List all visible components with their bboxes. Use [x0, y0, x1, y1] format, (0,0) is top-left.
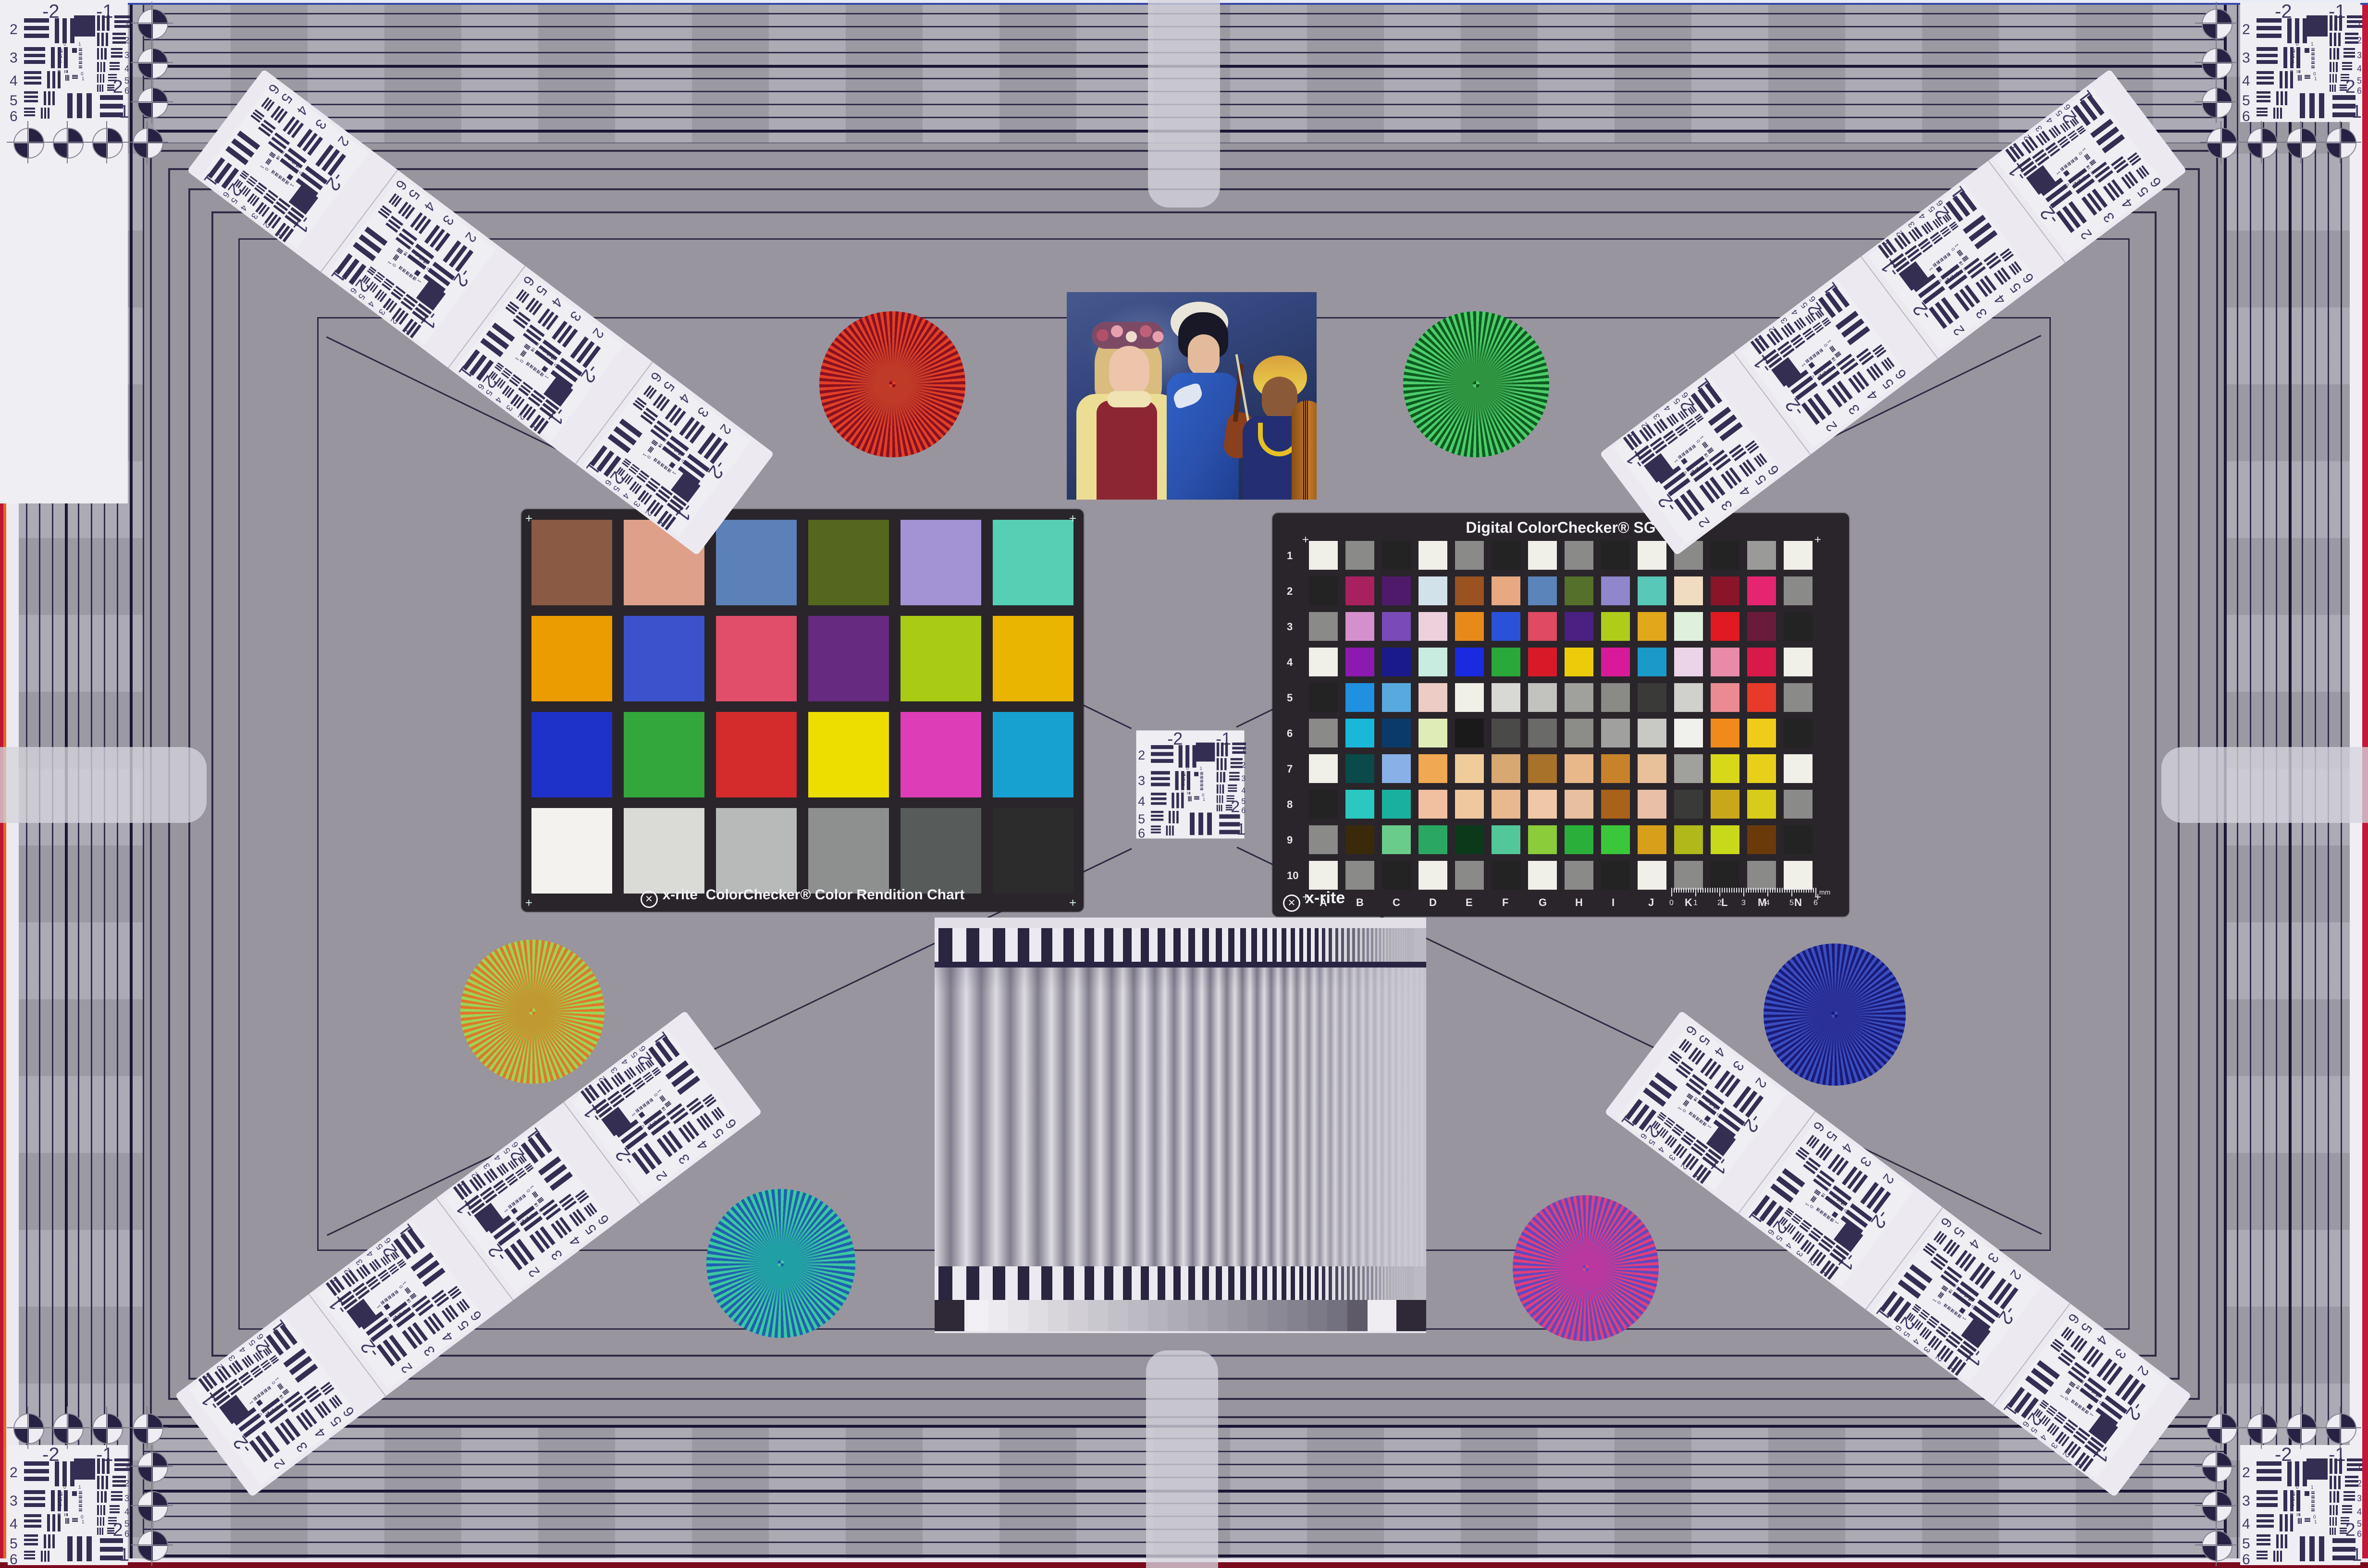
usaf-bottom-label: -2 [2339, 1521, 2356, 1539]
usaf-bar [2342, 1508, 2352, 1510]
usaf-bar [2290, 1514, 2293, 1531]
usaf-bottom-label: 1 [1745, 1208, 1766, 1227]
usaf-bar [1181, 774, 1185, 774]
usaf-bar [58, 72, 61, 72]
usaf-bar [2273, 108, 2275, 119]
usaf-group-label: 4 [124, 1507, 129, 1516]
usaf-center-label: 1 [377, 1304, 382, 1309]
usaf-bar [79, 1496, 82, 1497]
usaf-bar [2257, 1539, 2270, 1541]
usaf-bar [1200, 789, 1203, 790]
usaf-bar [24, 1534, 38, 1537]
usaf-bar [2257, 54, 2278, 58]
usaf-bar [2333, 62, 2335, 72]
usaf-bar [47, 71, 50, 88]
usaf-bar [64, 65, 65, 68]
usaf-group-label: 5 [2357, 1519, 2362, 1528]
usaf-bar [2311, 61, 2315, 61]
usaf-bar [110, 62, 120, 64]
usaf-bar [2273, 1551, 2275, 1562]
usaf-bar [66, 1513, 66, 1516]
usaf-bar [1200, 776, 1203, 776]
usaf-bar [65, 75, 66, 81]
usaf-bar [41, 108, 43, 119]
usaf-bar [1220, 772, 1222, 783]
usaf-bar [72, 78, 78, 79]
quadrant-cross-line [2216, 1524, 2217, 1566]
usaf-bar [99, 1528, 101, 1535]
usaf-bar [2297, 1497, 2297, 1502]
usaf-center-label: 0 [385, 1316, 391, 1321]
usaf-bar [24, 1461, 49, 1466]
usaf-bar [48, 1551, 49, 1562]
usaf-bottom-label: -2 [107, 1521, 123, 1539]
usaf-group-label: 3 [294, 1439, 310, 1454]
usaf-bar [2334, 33, 2336, 46]
usaf-bar [2295, 1461, 2299, 1486]
resolution-strip-top-left: -2-1234561234560101-21-2-123456123456010… [187, 69, 774, 556]
usaf-bar [2299, 65, 2300, 68]
usaf-bar [58, 1494, 62, 1494]
usaf-bar [67, 75, 68, 81]
usaf-bar [2343, 52, 2355, 54]
usaf-bar [1221, 805, 1222, 811]
usaf-bar [1217, 796, 1218, 803]
usaf-center-label: 0 [425, 266, 431, 271]
usaf-bar [2311, 1500, 2315, 1500]
usaf-bar [64, 70, 65, 73]
quadrant-circle [13, 128, 44, 159]
usaf-bar [2257, 114, 2268, 116]
usaf-bar [2319, 93, 2324, 118]
siemens-star-blue [1764, 943, 1906, 1086]
usaf-bar [2290, 70, 2293, 71]
usaf-bar [108, 74, 117, 75]
usaf-bar [256, 1399, 263, 1406]
usaf-bar [111, 48, 123, 50]
quadrant-cross-line [67, 121, 68, 163]
usaf-bar [24, 1497, 45, 1501]
usaf-bar [100, 74, 101, 83]
usaf-bar [110, 65, 120, 67]
usaf-center-label: 1 [2056, 170, 2061, 175]
usaf-bar [97, 33, 99, 46]
usaf-group-label: 6 [2242, 1553, 2250, 1567]
usaf-bar [2297, 65, 2297, 68]
usaf-bar [2257, 96, 2270, 98]
usaf-bar [2297, 1508, 2297, 1511]
quadrant-circle [2202, 1452, 2232, 1482]
usaf-bar [24, 18, 49, 23]
quadrant-circle [2247, 128, 2278, 159]
usaf-group-label: 4 [2120, 196, 2136, 210]
usaf-group-label: 3 [421, 1343, 438, 1358]
usaf-bar [2311, 1509, 2315, 1510]
usaf-bar [2285, 1534, 2287, 1548]
usaf-bar [66, 65, 66, 68]
siemens-star-gold-center-dot [529, 1008, 536, 1015]
usaf-bar [104, 48, 106, 60]
usaf-bar [1221, 796, 1223, 803]
usaf-bar [2311, 1505, 2315, 1506]
usaf-center-label: 0 [1843, 1208, 1848, 1213]
usaf-bar [58, 1494, 62, 1495]
usaf-bar [2257, 1554, 2268, 1556]
usaf-bar [2299, 54, 2300, 59]
usaf-bar [104, 1491, 106, 1503]
usaf-center-label: 1 [1804, 1201, 1809, 1206]
usaf-bar [1194, 796, 1199, 797]
usaf-center-label: 1 [82, 77, 85, 82]
usaf-center-label: 1 [1929, 266, 1934, 271]
usaf-bar [1172, 826, 1174, 836]
quadrant-cross-line [67, 1407, 68, 1449]
usaf-bar [24, 1557, 35, 1559]
usaf-group-label: 2 [654, 1168, 670, 1183]
usaf-center-label: 1 [2059, 1394, 2064, 1398]
usaf-bar [66, 1497, 66, 1502]
usaf-bar [48, 91, 50, 105]
usaf-bar [2257, 76, 2274, 79]
quadrant-cross-line [2261, 121, 2262, 163]
usaf-bar [1936, 266, 1942, 273]
usaf-bar [67, 1492, 67, 1497]
usaf-bar [2334, 1458, 2337, 1474]
usaf-center-label: 0 [553, 362, 558, 367]
usaf-bar [2283, 1490, 2287, 1511]
usaf-bar [2290, 71, 2293, 88]
usaf-bar [1200, 777, 1203, 777]
usaf-center-label: 0 [2296, 1485, 2299, 1490]
usaf-bar [2290, 66, 2294, 67]
resolution-strip-bottom-left-panel-0: -2-1234561234560101-21 [189, 1317, 357, 1485]
usaf-group-label: 6 [1241, 807, 1246, 814]
usaf-bar [2297, 54, 2297, 59]
usaf-group-label: 3 [1719, 498, 1735, 513]
usaf-bar [2298, 1492, 2299, 1497]
quadrant-cross-line [2216, 81, 2217, 123]
usaf-bar [24, 76, 41, 79]
quadrant-cross-line [2216, 1445, 2217, 1487]
usaf-bar [383, 1303, 390, 1310]
usaf-bar [1151, 745, 1173, 749]
usaf-bar [2290, 65, 2294, 65]
usaf-center-label: 1 [1706, 1124, 1712, 1128]
usaf-bar [58, 60, 62, 60]
usaf-bar [2299, 1503, 2300, 1507]
usaf-bar [1200, 780, 1203, 780]
usaf-bar [79, 1491, 82, 1492]
usaf-bar [97, 85, 99, 92]
usaf-group-label: 4 [1663, 404, 1672, 413]
usaf-group-label: 2 [124, 36, 129, 45]
usaf-bar [639, 1112, 645, 1118]
usaf-bar [79, 1508, 82, 1509]
usaf-bar [1217, 743, 1219, 757]
usaf-bar [2343, 1491, 2355, 1493]
usaf-group-label: 6 [2242, 110, 2250, 124]
usaf-center-label: 0 [2097, 1400, 2103, 1405]
usaf-bar [2335, 74, 2337, 83]
quadrant-circle [2202, 48, 2232, 79]
usaf-bar [66, 54, 66, 59]
usaf-bar [2300, 93, 2305, 118]
usaf-bar [1181, 794, 1184, 795]
usaf-group-label: 6 [124, 86, 129, 95]
usaf-bar [2298, 1497, 2299, 1502]
usaf-bar [2311, 1510, 2315, 1511]
usaf-bar [1188, 787, 1189, 790]
usaf-group-label: 3 [124, 1494, 129, 1503]
usaf-bar [2299, 1497, 2300, 1502]
usaf-group-label: 2 [1696, 514, 1713, 529]
usaf-bar [68, 75, 69, 81]
usaf-bar [2290, 67, 2294, 68]
usaf-bar [66, 49, 66, 54]
usaf-bar [2290, 62, 2294, 62]
usaf-bar [79, 1492, 82, 1493]
quadrant-circle [2326, 1413, 2356, 1444]
usaf-bar [67, 1513, 67, 1516]
usaf-center-label: 1 [1700, 435, 1705, 440]
usaf-bar [2311, 1491, 2315, 1492]
usaf-group-label: 6 [1138, 827, 1145, 840]
usaf-bar [1194, 797, 1199, 798]
usaf-group-label: 3 [2357, 51, 2362, 60]
usaf-group-label: 5 [10, 94, 18, 108]
usaf-bar [2277, 1551, 2279, 1562]
usaf-center-label: 1 [78, 42, 81, 47]
usaf-bar [2257, 26, 2282, 30]
usaf-group-label: 4 [1911, 1337, 1921, 1346]
usaf-bar [100, 1505, 102, 1515]
quadrant-cross-line [2300, 121, 2301, 163]
usaf-bar [2311, 59, 2315, 59]
usaf-group-label: 4 [1992, 292, 2009, 306]
usaf-bar [1200, 781, 1203, 781]
usaf-bar [58, 61, 62, 61]
usaf-bar [2257, 60, 2278, 64]
usaf-bar [2257, 1551, 2268, 1553]
usaf-group-label: 4 [695, 1137, 711, 1152]
usaf-bar [86, 93, 92, 118]
usaf-bar [110, 1505, 120, 1507]
usaf-bar [97, 1505, 99, 1515]
usaf-group-label: 2 [2079, 227, 2095, 242]
usaf-group-label: 6 [10, 1553, 18, 1567]
usaf-bar [414, 269, 421, 276]
usaf-bar [2309, 93, 2315, 118]
quadrant-cross-line [2216, 41, 2217, 84]
usaf-bar [66, 1503, 66, 1507]
usaf-center-label: 1 [1931, 1298, 1936, 1302]
quadrant-circle [2286, 128, 2317, 159]
usaf-bar [67, 70, 67, 73]
usaf-bar [1227, 796, 1234, 797]
usaf-bar [2330, 1528, 2331, 1535]
usaf-group-label: 4 [365, 1249, 375, 1259]
usaf-bar [1207, 813, 1212, 835]
usaf-bar [2332, 1517, 2334, 1526]
usaf-bar [24, 1543, 38, 1545]
usaf-bar [97, 1517, 99, 1526]
usaf-bar [2330, 48, 2331, 60]
usaf-center-label: 1 [1801, 362, 1807, 367]
usaf-bar [77, 1536, 82, 1561]
siemens-star-gold [460, 940, 604, 1084]
usaf-bar [2330, 1491, 2331, 1503]
usaf-target-corner-2: -2-1234561234560101-21 [8, 1445, 128, 1565]
usaf-bar [2311, 1497, 2315, 1498]
usaf-center-label: 1 [530, 1184, 535, 1189]
usaf-bar [103, 1505, 105, 1515]
usaf-bar [2257, 71, 2274, 74]
usaf-bar [1228, 787, 1237, 789]
quadrant-circle [2207, 128, 2237, 159]
usaf-center-label: 1 [1834, 1220, 1839, 1225]
usaf-bar [2330, 1476, 2332, 1489]
usaf-bar [24, 1539, 38, 1541]
usaf-bar [2257, 108, 2268, 110]
usaf-bar [2298, 1518, 2299, 1524]
usaf-center-label: 0 [1810, 374, 1815, 379]
usaf-bar [2290, 72, 2293, 72]
usaf-bar [2305, 1521, 2310, 1522]
usaf-group-label: 6 [393, 177, 409, 192]
usaf-bar [1200, 778, 1203, 778]
corner-panel-bg [0, 378, 128, 503]
usaf-bar [47, 1514, 50, 1531]
usaf-center-label: 1 [289, 182, 294, 187]
usaf-bar [2332, 1528, 2333, 1535]
resolution-strip-top-left-panel-3: -2-1234561234560101-21 [583, 368, 751, 537]
usaf-bar [2280, 1514, 2282, 1531]
usaf-bar [58, 1503, 62, 1503]
usaf-target-corner-0: -2-1234561234560101-21 [8, 2, 128, 122]
quadrant-cross-line [151, 1445, 152, 1487]
usaf-bar [2257, 1519, 2274, 1522]
usaf-bar [67, 1503, 67, 1507]
usaf-bar [1681, 458, 1688, 465]
usaf-bar [58, 1516, 61, 1516]
usaf-bar [2336, 1505, 2338, 1515]
usaf-bar [2336, 62, 2338, 72]
usaf-group-label: 2 [2242, 1466, 2250, 1480]
usaf-bar [74, 15, 95, 37]
usaf-center-label: 1 [82, 1520, 85, 1525]
usaf-bar [86, 1536, 92, 1561]
usaf-group-label: 4 [1838, 1140, 1855, 1155]
usaf-bar [2290, 1509, 2294, 1510]
usaf-bar [1187, 783, 1188, 786]
usaf-group-label: 6 [124, 1530, 129, 1538]
usaf-bar [1188, 792, 1189, 794]
usaf-bar [2283, 47, 2287, 68]
usaf-group-label: 2 [1752, 1075, 1769, 1090]
usaf-group-label: 3 [2101, 210, 2117, 225]
usaf-bar [1181, 779, 1185, 779]
usaf-bar [2311, 63, 2315, 63]
usaf-bar [2290, 1494, 2295, 1495]
usaf-bar [2342, 65, 2352, 67]
usaf-bar [2086, 1403, 2093, 1410]
siemens-star-green [1403, 311, 1549, 457]
usaf-bar [24, 108, 35, 110]
usaf-bar [67, 1536, 73, 1561]
usaf-group-label: 2 [2357, 36, 2362, 45]
quadrant-cross-line [2340, 121, 2341, 163]
usaf-bar [2295, 18, 2299, 43]
usaf-center-label: 1 [1677, 1106, 1682, 1111]
usaf-group-label: 5 [124, 76, 129, 85]
usaf-bar [1224, 758, 1226, 770]
usaf-group-label: 2 [10, 1466, 18, 1480]
usaf-bar [2311, 50, 2315, 50]
usaf-bar [2345, 1476, 2358, 1478]
usaf-bar [1187, 778, 1188, 782]
usaf-bar [1151, 793, 1166, 795]
usaf-bar [1221, 758, 1222, 770]
usaf-bar [2290, 1510, 2294, 1511]
usaf-bar [2311, 1506, 2315, 1507]
usaf-bottom-label: 1 [2000, 1400, 2021, 1419]
usaf-bar [2343, 55, 2355, 57]
usaf-bar [1194, 799, 1199, 800]
usaf-bar [74, 1458, 95, 1480]
usaf-bar [2297, 1513, 2297, 1516]
usaf-bar [44, 1534, 46, 1548]
usaf-group-label: 3 [549, 1247, 565, 1262]
usaf-group-label: 4 [10, 74, 18, 88]
usaf-bar [1200, 773, 1203, 773]
usaf-bar [79, 54, 82, 55]
usaf-bar [97, 15, 100, 31]
usaf-bar [1832, 1211, 1838, 1218]
siemens-star-blue-center-dot [1831, 1011, 1838, 1018]
usaf-group-label: 5 [2357, 76, 2362, 85]
usaf-bar [79, 63, 82, 63]
usaf-bar [100, 62, 102, 72]
resolution-strip-top-left-panel-0: -2-1234561234560101-21 [201, 81, 369, 249]
usaf-bar [1181, 787, 1184, 787]
usaf-group-label: 4 [2094, 1332, 2110, 1347]
usaf-group-label: 3 [312, 116, 329, 131]
usaf-bar [2330, 1458, 2332, 1474]
usaf-group-label: 4 [1711, 1044, 1727, 1059]
usaf-group-label: 4 [2242, 1517, 2250, 1531]
usaf-bar [2311, 66, 2315, 67]
usaf-bar [97, 62, 99, 72]
usaf-group-label: 2 [590, 325, 606, 340]
usaf-bar [1151, 811, 1163, 813]
usaf-bar [1188, 796, 1189, 801]
usaf-bar [24, 1490, 45, 1494]
usaf-bar [2285, 71, 2288, 88]
usaf-group-label: 3 [1973, 306, 1990, 320]
usaf-bar [1188, 778, 1189, 782]
usaf-group-label: 2 [1138, 749, 1145, 762]
usaf-bottom-label: 1 [2352, 1546, 2362, 1564]
usaf-bar [44, 1551, 46, 1562]
usaf-bar [2311, 1495, 2315, 1496]
usaf-bar [58, 1504, 62, 1505]
resolution-strip-top-right-panel-0: -2-1234561234560101-21 [1614, 376, 1782, 544]
usaf-bar [97, 1491, 99, 1503]
usaf-bar [2330, 85, 2331, 92]
usaf-bar [67, 49, 67, 54]
usaf-bar [1189, 783, 1190, 786]
usaf-bar [2276, 1534, 2279, 1548]
